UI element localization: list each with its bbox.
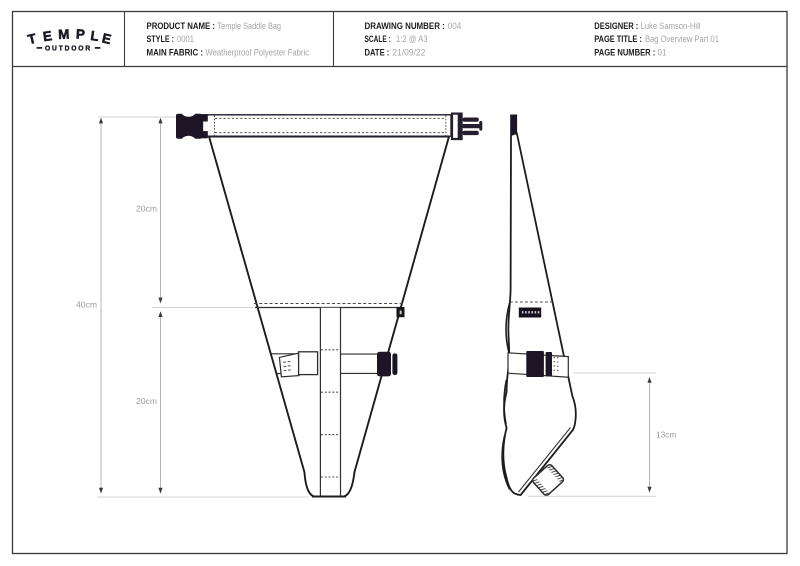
svg-text:E: E <box>101 31 113 48</box>
svg-text:P: P <box>76 27 86 42</box>
svg-text:DATE :: DATE : <box>365 48 390 58</box>
svg-text:40cm: 40cm <box>76 299 97 309</box>
svg-text:1:2 @ A3: 1:2 @ A3 <box>396 34 428 44</box>
svg-text:DESIGNER :: DESIGNER : <box>594 21 638 31</box>
svg-text:PAGE TITLE :: PAGE TITLE : <box>594 34 642 44</box>
svg-text:M: M <box>58 27 70 42</box>
svg-text:Luke Samson-Hill: Luke Samson-Hill <box>641 21 701 31</box>
svg-text:21/09/22: 21/09/22 <box>392 48 425 58</box>
svg-text:T: T <box>26 31 38 48</box>
svg-text:OUTDOOR: OUTDOOR <box>45 45 92 52</box>
svg-text:SCALE :: SCALE : <box>365 34 391 44</box>
svg-text:Weatherproof Polyester Fabric: Weatherproof Polyester Fabric <box>206 48 310 58</box>
svg-text:Temple Saddle Bag: Temple Saddle Bag <box>218 21 282 31</box>
svg-text:L: L <box>90 28 100 44</box>
svg-text:STYLE :: STYLE : <box>147 34 175 44</box>
svg-text:DRAWING NUMBER :: DRAWING NUMBER : <box>365 21 445 31</box>
svg-text:01: 01 <box>658 48 667 58</box>
svg-text:PRODUCT NAME :: PRODUCT NAME : <box>147 21 216 31</box>
svg-text:0001: 0001 <box>177 34 194 44</box>
svg-text:E: E <box>42 28 53 44</box>
svg-text:20cm: 20cm <box>136 204 157 214</box>
svg-text:004: 004 <box>448 21 462 31</box>
svg-text:20cm: 20cm <box>136 396 157 406</box>
svg-text:PAGE NUMBER :: PAGE NUMBER : <box>594 48 655 58</box>
svg-text:Bag Overview Part 01: Bag Overview Part 01 <box>645 34 719 44</box>
svg-text:13cm: 13cm <box>656 429 676 439</box>
svg-text:MAIN FABRIC :: MAIN FABRIC : <box>147 48 204 58</box>
